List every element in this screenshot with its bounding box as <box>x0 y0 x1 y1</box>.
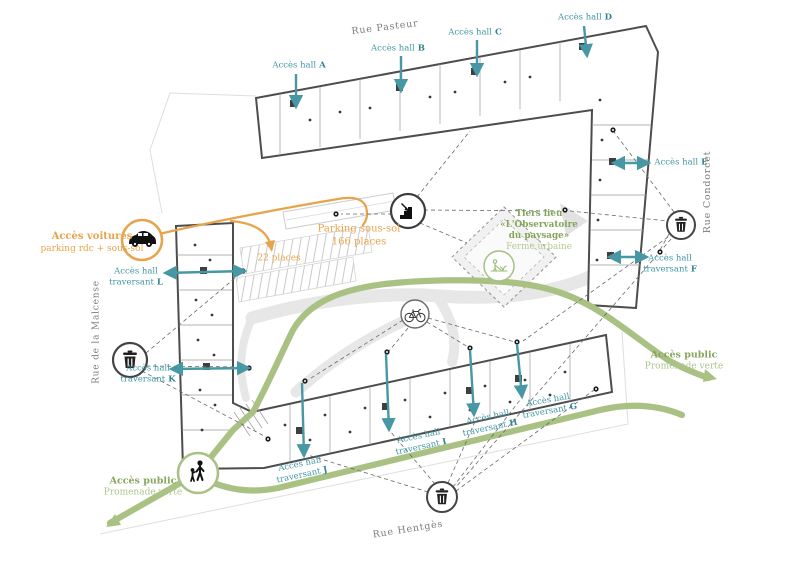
public-access-right-label: Accès public Promenade verte <box>645 349 723 372</box>
street-label-rue-de-la-malcense: Rue de la Malcense <box>91 280 102 384</box>
hall-f-label: Accès hall traversantF <box>643 253 697 274</box>
hall-k-label: Accès hall traversantK <box>120 363 175 384</box>
hall-c-label: Accès hallC <box>448 28 502 39</box>
hall-d-label: Accès hallD <box>558 13 612 24</box>
hall-k-arrow <box>171 368 249 369</box>
public-access-left-label: Accès public Promenade verte <box>104 475 182 498</box>
trash-badge-bottom <box>427 482 457 512</box>
tiers-lieu-label: Tiers lieu «L'Observatoire du paysage» F… <box>500 209 578 253</box>
parking-label: Parking sous-sol 166 places <box>318 224 401 249</box>
urban-farm-badge <box>484 251 514 281</box>
bike-badge <box>401 300 429 328</box>
hall-b-label: Accès hallB <box>371 44 425 55</box>
site-plan: Rue Pasteur Rue Condorcet Rue de la Malc… <box>0 0 800 570</box>
hall-e-label: Accès hallE <box>654 158 707 169</box>
pedestrian-badge <box>178 453 218 493</box>
trash-badge-right <box>667 211 695 239</box>
car-access-label: Accès voitures parking rdc + sous-sol <box>41 231 144 255</box>
hall-a-label: Accès hallA <box>272 61 325 72</box>
hall-l-label: Accès hall traversantL <box>109 266 163 287</box>
parking-22-places-label: 22 places <box>257 253 300 264</box>
